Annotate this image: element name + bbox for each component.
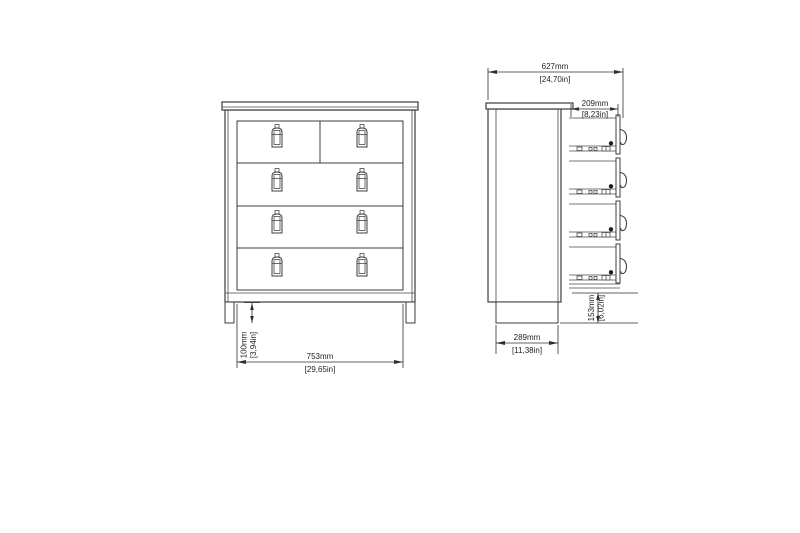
side-drawer-1 — [569, 115, 627, 154]
front-drawer-3 — [237, 206, 403, 248]
dim-arrow — [610, 107, 618, 111]
dim-label-in: [3,94in] — [249, 332, 258, 358]
dim-label-mm: 209mm — [582, 99, 609, 108]
dim-arrow — [549, 341, 558, 345]
front-top-panel — [222, 102, 418, 110]
side-bottom-edge-lines — [569, 284, 620, 288]
side-panel — [488, 109, 561, 302]
dim-label-in: [11,38in] — [512, 346, 542, 355]
dim-bottom-height: 153mm [6,02in] — [560, 293, 638, 323]
dim-label-mm: 627mm — [542, 62, 569, 71]
technical-drawing-canvas: 753mm [29,65in] 100mm [3,94in] 627mm [24… — [0, 0, 800, 533]
furniture-dimension-drawing: 753mm [29,65in] 100mm [3,94in] 627mm [24… — [0, 0, 800, 533]
front-leg-left — [225, 302, 234, 323]
dim-label-mm: 753mm — [307, 352, 334, 361]
front-leg-right — [406, 302, 415, 323]
side-drawer-3 — [569, 201, 627, 240]
side-drawer-2 — [569, 158, 627, 197]
side-view — [486, 103, 627, 323]
side-drawer-4 — [569, 244, 627, 283]
dim-label-in: [24,70in] — [540, 75, 571, 84]
dim-label-in: [8,23in] — [582, 110, 608, 119]
dim-drawer-depth: 209mm [8,23in] — [571, 99, 618, 119]
dim-label-mm: 100mm — [240, 331, 249, 358]
dim-label-in: [6,02in] — [597, 295, 606, 321]
dim-label-mm: 153mm — [587, 294, 596, 321]
dim-arrow — [496, 341, 505, 345]
dim-arrow — [394, 360, 403, 364]
side-base — [496, 302, 558, 323]
dim-arrow — [250, 316, 254, 323]
dim-arrow — [488, 70, 497, 74]
front-view — [222, 102, 418, 323]
dim-overall-width: 753mm [29,65in] — [237, 304, 403, 374]
front-drawer-2 — [237, 163, 403, 206]
side-top-panel — [486, 103, 573, 109]
side-drawer-stack — [569, 115, 627, 283]
dim-arrow — [237, 360, 246, 364]
dim-base-depth: 289mm [11,38in] — [496, 325, 558, 355]
front-drawer-4 — [237, 248, 403, 290]
dim-arrow — [614, 70, 623, 74]
dim-arrow — [250, 303, 254, 310]
dim-plinth-height: 100mm [3,94in] — [240, 303, 261, 359]
dim-label-mm: 289mm — [514, 333, 541, 342]
dim-label-in: [29,65in] — [305, 365, 336, 374]
